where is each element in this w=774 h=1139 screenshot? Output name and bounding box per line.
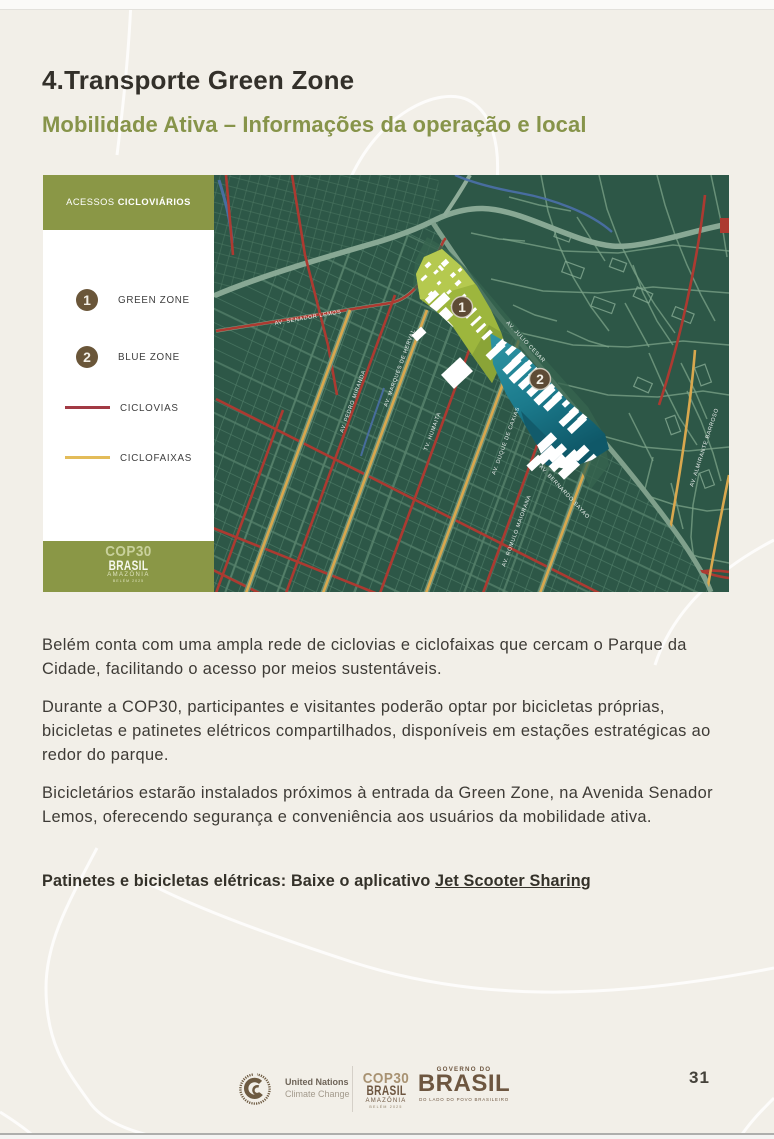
svg-text:1: 1 — [458, 299, 466, 315]
svg-text:2: 2 — [536, 371, 544, 387]
